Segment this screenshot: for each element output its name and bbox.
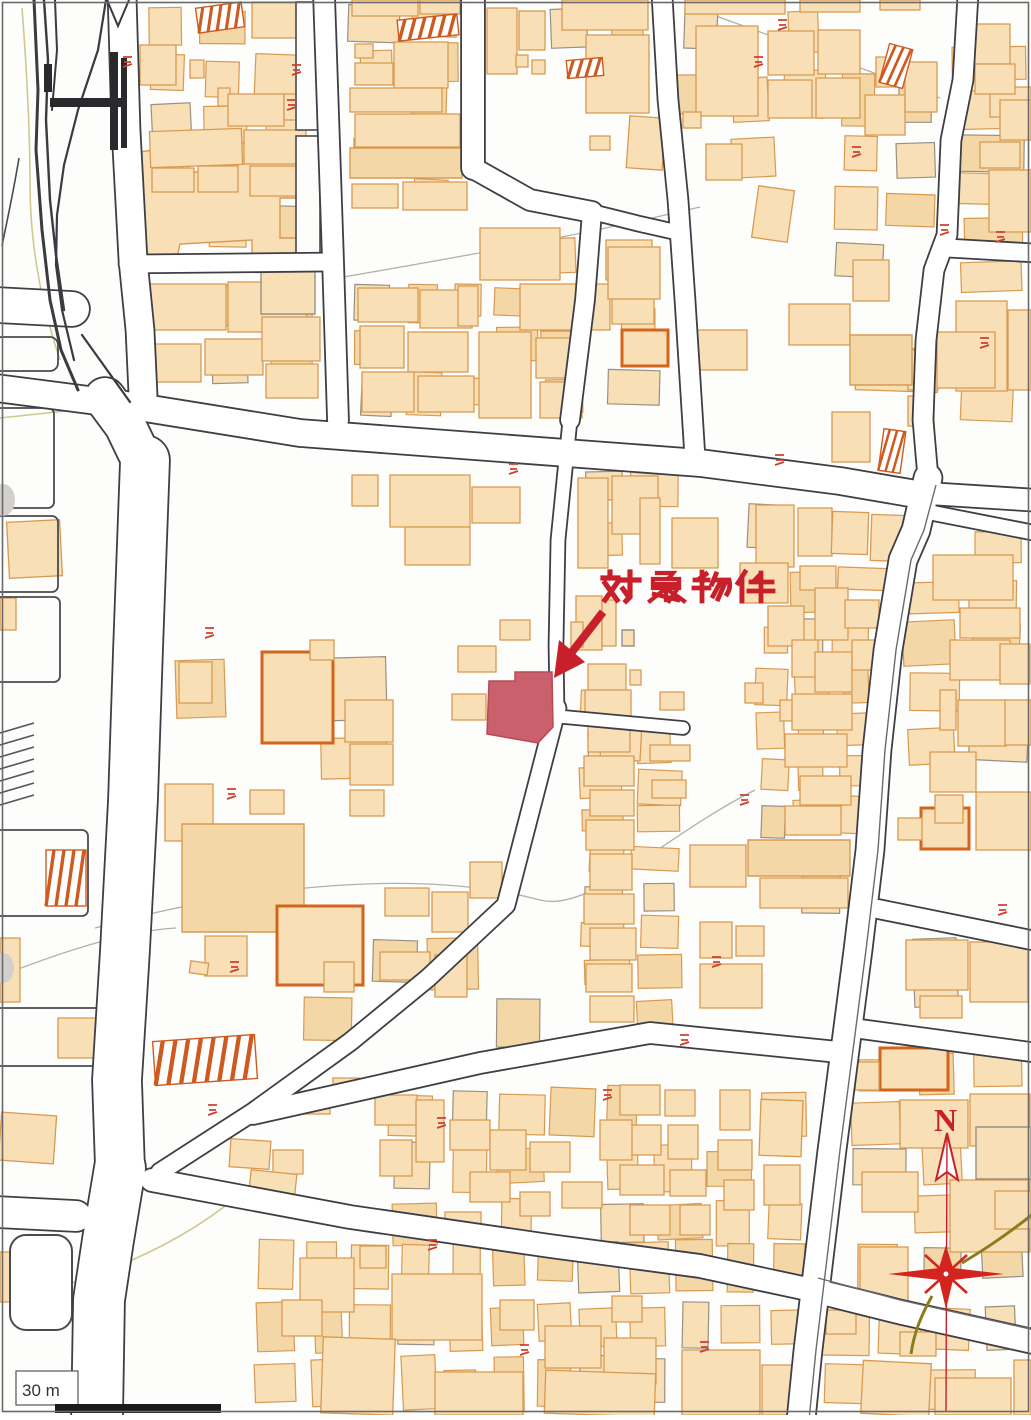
svg-text:N: N	[934, 1102, 957, 1138]
svg-text:30 m: 30 m	[22, 1381, 60, 1400]
